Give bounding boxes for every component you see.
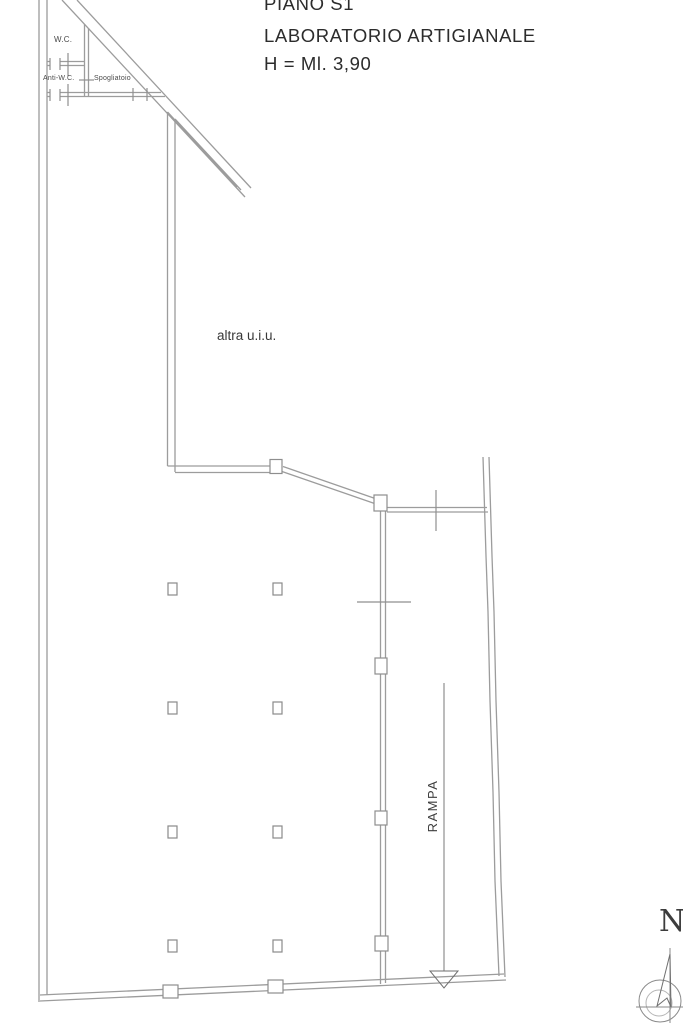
column (168, 702, 177, 714)
floor-plan-canvas: PIANO S1 LABORATORIO ARTIGIANALE H = Ml.… (0, 0, 683, 1023)
interior-diagonal-wall (283, 467, 378, 500)
ramp-wall (381, 511, 386, 984)
column (273, 702, 282, 714)
room-label-spogliatoio: Spogliatoio (94, 75, 131, 82)
pillar (374, 495, 387, 511)
room-label-wc: W.C. (54, 35, 72, 44)
pillar (163, 985, 178, 998)
interior-diagonal-wall (282, 472, 376, 505)
top-diagonal-wall-outer (62, 0, 245, 197)
pillar (375, 936, 388, 951)
room-label-rampa: RAMPA (402, 776, 462, 836)
unit-boundary-walls (168, 112, 489, 512)
compass-inner-circle (646, 990, 672, 1016)
floor-plan-drawing (0, 0, 683, 1023)
reference-ticks (357, 490, 436, 602)
ramp-arrow-head (430, 971, 458, 988)
column (168, 583, 177, 595)
right-wall (483, 457, 505, 977)
pillar (268, 980, 283, 993)
plan-title-height: H = Ml. 3,90 (264, 53, 371, 75)
column (168, 826, 177, 838)
pillar (270, 460, 282, 474)
column-grid (168, 583, 282, 952)
compass-north-label: N (659, 904, 683, 939)
column (273, 940, 282, 952)
pillar (375, 811, 387, 825)
column (168, 940, 177, 952)
pillars (163, 460, 388, 999)
plan-title-floor: PIANO S1 (264, 0, 354, 15)
top-diagonal-wall-inner (77, 0, 251, 188)
column (273, 826, 282, 838)
room-label-anti-wc: Anti-W.C. (43, 75, 74, 82)
pillar (375, 658, 387, 674)
compass-rose (636, 948, 683, 1023)
room-label-altra-uiu: altra u.i.u. (217, 328, 276, 343)
column (273, 583, 282, 595)
plan-title-use: LABORATORIO ARTIGIANALE (264, 25, 536, 47)
